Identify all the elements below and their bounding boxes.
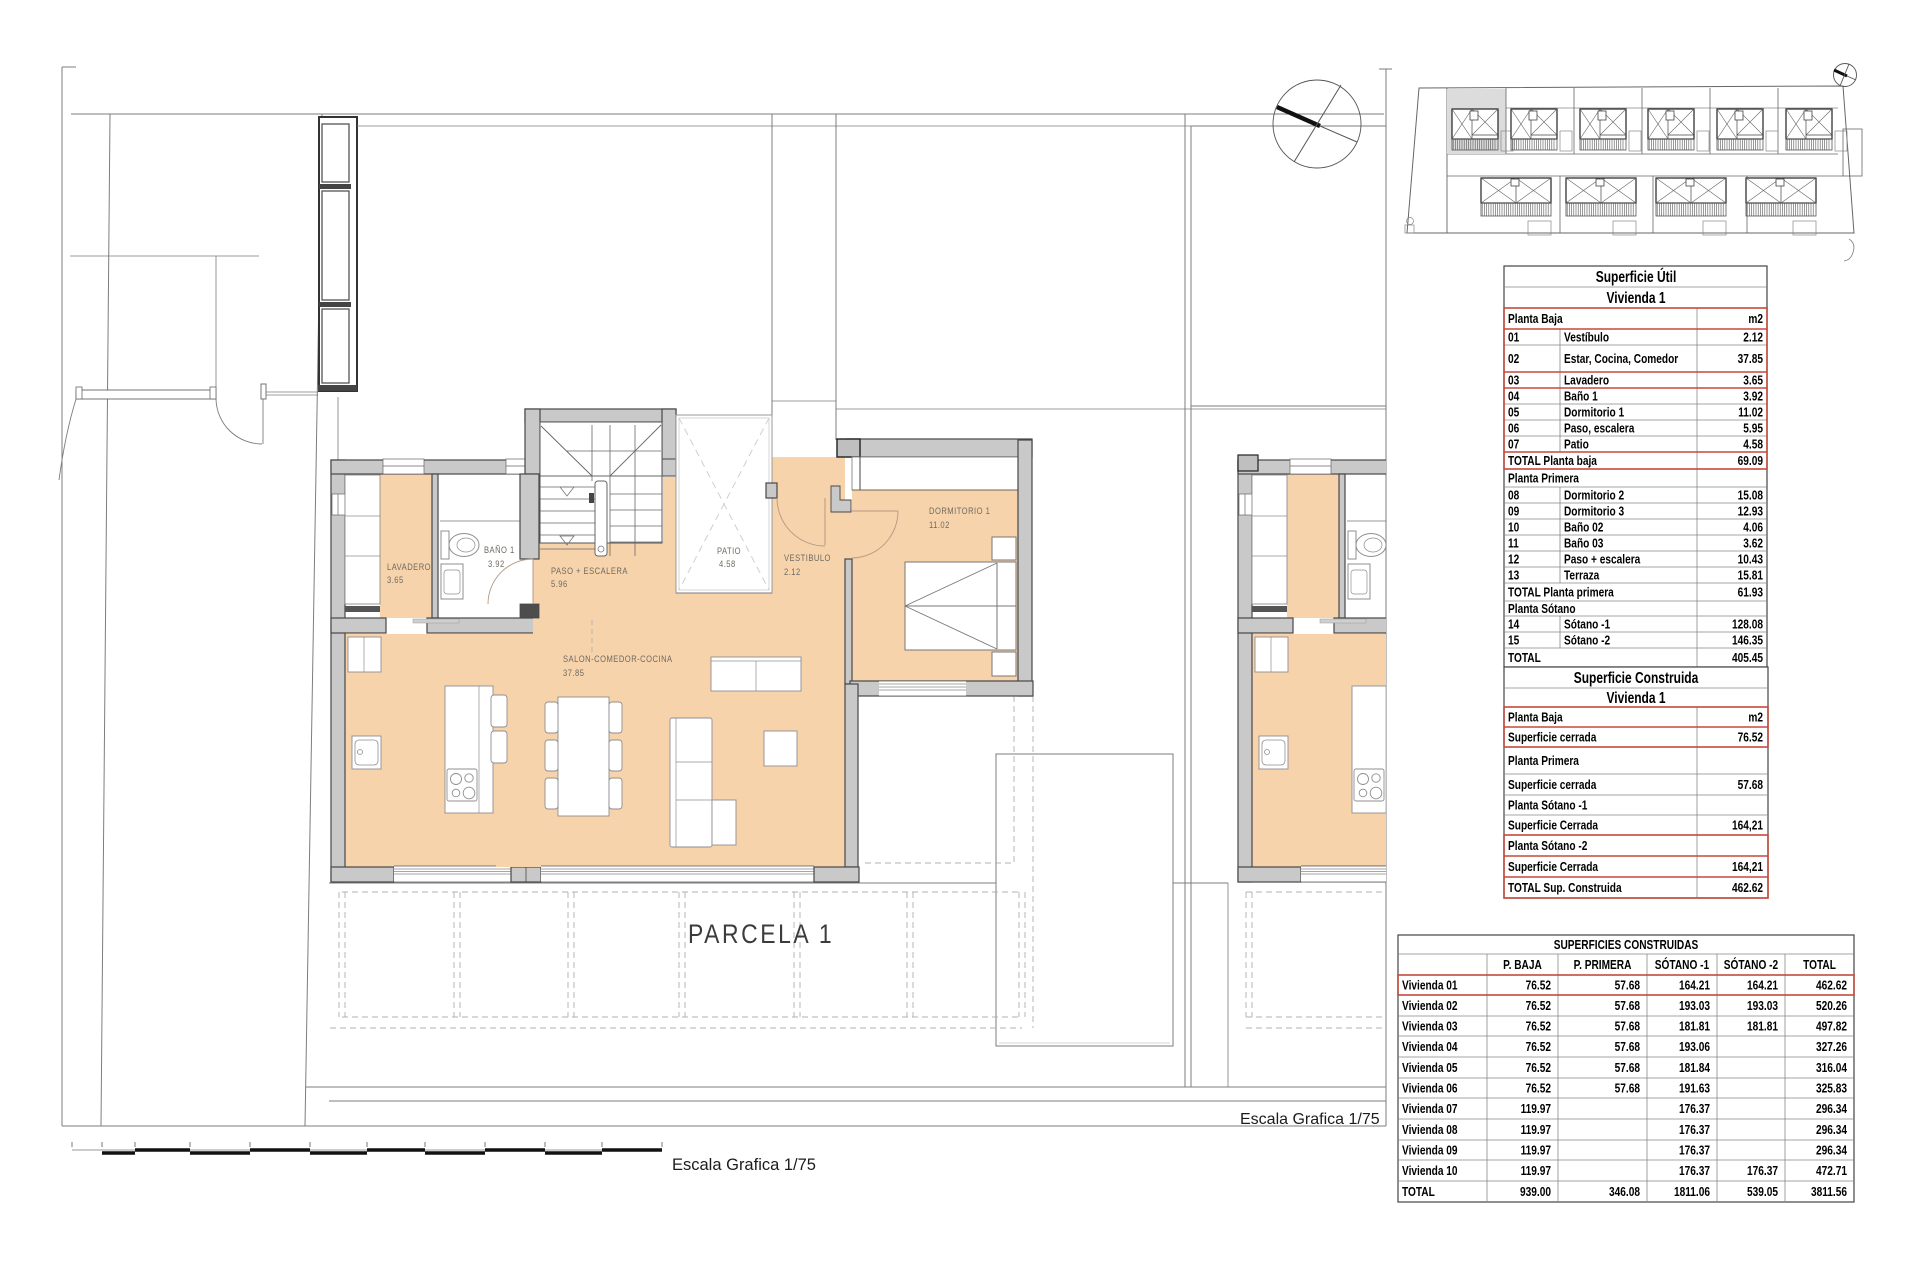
svg-text:119.97: 119.97: [1521, 1123, 1551, 1137]
svg-text:5.96: 5.96: [551, 578, 568, 589]
svg-text:119.97: 119.97: [1521, 1102, 1551, 1116]
svg-text:Lavadero: Lavadero: [1564, 373, 1609, 387]
svg-text:06: 06: [1508, 421, 1520, 435]
svg-text:128.08: 128.08: [1732, 617, 1763, 631]
svg-text:76.52: 76.52: [1526, 999, 1552, 1013]
svg-text:Superficie Cerrada: Superficie Cerrada: [1508, 860, 1598, 874]
svg-text:SÓTANO -2: SÓTANO -2: [1724, 958, 1779, 972]
svg-text:37.85: 37.85: [1738, 352, 1764, 366]
svg-text:Baño 02: Baño 02: [1564, 520, 1604, 534]
svg-text:176.37: 176.37: [1747, 1164, 1778, 1178]
svg-text:Vivienda 07: Vivienda 07: [1402, 1102, 1458, 1116]
svg-text:TOTAL: TOTAL: [1508, 651, 1541, 665]
svg-text:Sótano -1: Sótano -1: [1564, 617, 1611, 631]
svg-text:176.37: 176.37: [1679, 1102, 1710, 1116]
svg-text:Planta Sótano -2: Planta Sótano -2: [1508, 839, 1588, 853]
svg-text:Vestíbulo: Vestíbulo: [1564, 330, 1609, 344]
svg-text:76.52: 76.52: [1526, 1061, 1552, 1075]
svg-text:Planta Sótano -1: Planta Sótano -1: [1508, 798, 1588, 812]
svg-text:939.00: 939.00: [1520, 1185, 1551, 1199]
svg-text:PARCELA 1: PARCELA 1: [688, 919, 834, 949]
svg-text:76.52: 76.52: [1526, 1081, 1552, 1095]
svg-text:325.83: 325.83: [1816, 1081, 1847, 1095]
svg-text:76.52: 76.52: [1526, 1019, 1552, 1033]
svg-text:Vivienda 10: Vivienda 10: [1402, 1164, 1458, 1178]
svg-text:3.92: 3.92: [1743, 389, 1763, 403]
svg-text:Estar, Cocina, Comedor: Estar, Cocina, Comedor: [1564, 352, 1679, 366]
svg-text:Paso + escalera: Paso + escalera: [1564, 552, 1641, 566]
svg-text:296.34: 296.34: [1816, 1123, 1847, 1137]
svg-text:5.95: 5.95: [1743, 421, 1763, 435]
svg-text:3.92: 3.92: [488, 558, 505, 569]
svg-text:296.34: 296.34: [1816, 1102, 1847, 1116]
svg-text:176.37: 176.37: [1679, 1164, 1710, 1178]
svg-text:3.65: 3.65: [1743, 373, 1763, 387]
svg-text:57.68: 57.68: [1615, 1081, 1641, 1095]
svg-text:Dormitorio 3: Dormitorio 3: [1564, 504, 1625, 518]
svg-text:09: 09: [1508, 504, 1520, 518]
svg-text:m2: m2: [1748, 710, 1763, 724]
svg-text:Baño 1: Baño 1: [1564, 389, 1598, 403]
svg-text:296.34: 296.34: [1816, 1143, 1847, 1157]
svg-text:Superficie Cerrada: Superficie Cerrada: [1508, 818, 1598, 832]
svg-text:316.04: 316.04: [1816, 1061, 1847, 1075]
svg-text:346.08: 346.08: [1609, 1185, 1640, 1199]
svg-text:61.93: 61.93: [1738, 585, 1764, 599]
svg-text:SUPERFICIES CONSTRUIDAS: SUPERFICIES CONSTRUIDAS: [1554, 938, 1699, 952]
svg-text:3.62: 3.62: [1743, 536, 1763, 550]
svg-text:176.37: 176.37: [1679, 1143, 1710, 1157]
svg-text:10: 10: [1508, 520, 1519, 534]
svg-text:04: 04: [1508, 389, 1520, 403]
svg-text:Vivienda 04: Vivienda 04: [1402, 1040, 1458, 1054]
svg-text:164.21: 164.21: [1747, 978, 1778, 992]
svg-text:BAÑO 1: BAÑO 1: [484, 544, 515, 555]
svg-text:Dormitorio 2: Dormitorio 2: [1564, 488, 1625, 502]
svg-text:07: 07: [1508, 437, 1519, 451]
svg-text:TOTAL: TOTAL: [1803, 958, 1836, 972]
svg-text:Planta Primera: Planta Primera: [1508, 754, 1579, 768]
svg-text:12: 12: [1508, 552, 1520, 566]
svg-text:11.02: 11.02: [1738, 405, 1763, 419]
svg-text:539.05: 539.05: [1747, 1185, 1778, 1199]
svg-text:76.52: 76.52: [1526, 1040, 1552, 1054]
svg-text:57.68: 57.68: [1738, 778, 1764, 792]
svg-text:462.62: 462.62: [1732, 881, 1763, 895]
svg-text:Vivienda 06: Vivienda 06: [1402, 1081, 1458, 1095]
svg-text:Vivienda 01: Vivienda 01: [1402, 978, 1458, 992]
svg-text:TOTAL Planta primera: TOTAL Planta primera: [1508, 585, 1614, 599]
svg-text:Escala Grafica 1/75: Escala Grafica 1/75: [1240, 1111, 1380, 1128]
svg-text:P. PRIMERA: P. PRIMERA: [1574, 958, 1632, 972]
svg-text:57.68: 57.68: [1615, 1040, 1641, 1054]
svg-text:Vivienda 03: Vivienda 03: [1402, 1019, 1458, 1033]
svg-text:57.68: 57.68: [1615, 999, 1641, 1013]
svg-text:15: 15: [1508, 633, 1520, 647]
svg-text:3.65: 3.65: [387, 574, 404, 585]
svg-text:12.93: 12.93: [1738, 504, 1764, 518]
svg-text:405.45: 405.45: [1732, 651, 1763, 665]
svg-text:Vivienda 09: Vivienda 09: [1402, 1143, 1458, 1157]
svg-text:03: 03: [1508, 373, 1520, 387]
svg-text:Superficie Construida: Superficie Construida: [1574, 668, 1699, 686]
svg-text:PASO + ESCALERA: PASO + ESCALERA: [551, 565, 628, 576]
svg-text:57.68: 57.68: [1615, 1019, 1641, 1033]
svg-text:37.85: 37.85: [563, 667, 584, 678]
svg-text:4.58: 4.58: [719, 558, 736, 569]
svg-text:Vivienda 08: Vivienda 08: [1402, 1123, 1458, 1137]
svg-text:181.81: 181.81: [1679, 1019, 1710, 1033]
svg-text:181.81: 181.81: [1747, 1019, 1778, 1033]
svg-text:Terraza: Terraza: [1564, 568, 1600, 582]
svg-text:76.52: 76.52: [1738, 730, 1764, 744]
svg-text:10.43: 10.43: [1738, 552, 1764, 566]
svg-text:05: 05: [1508, 405, 1520, 419]
svg-text:57.68: 57.68: [1615, 978, 1641, 992]
svg-text:146.35: 146.35: [1732, 633, 1763, 647]
svg-text:Planta Baja: Planta Baja: [1508, 710, 1563, 724]
svg-text:P. BAJA: P. BAJA: [1503, 958, 1542, 972]
svg-text:11: 11: [1508, 536, 1519, 550]
svg-text:1811.06: 1811.06: [1674, 1185, 1710, 1199]
svg-text:69.09: 69.09: [1738, 454, 1764, 468]
svg-text:Vivienda 02: Vivienda 02: [1402, 999, 1458, 1013]
svg-text:Vivienda 05: Vivienda 05: [1402, 1061, 1458, 1075]
svg-text:14: 14: [1508, 617, 1520, 631]
svg-text:76.52: 76.52: [1526, 978, 1552, 992]
svg-text:Patio: Patio: [1564, 437, 1589, 451]
svg-text:193.03: 193.03: [1747, 999, 1778, 1013]
svg-text:TOTAL Sup. Construida: TOTAL Sup. Construida: [1508, 881, 1622, 895]
svg-text:497.82: 497.82: [1816, 1019, 1847, 1033]
svg-text:Baño 03: Baño 03: [1564, 536, 1604, 550]
svg-text:TOTAL: TOTAL: [1402, 1185, 1435, 1199]
svg-text:Escala Grafica 1/75: Escala Grafica 1/75: [672, 1156, 816, 1174]
svg-text:4.58: 4.58: [1743, 437, 1763, 451]
svg-text:13: 13: [1508, 568, 1520, 582]
svg-text:181.84: 181.84: [1679, 1061, 1710, 1075]
svg-text:2.12: 2.12: [1743, 330, 1763, 344]
svg-text:164,21: 164,21: [1732, 818, 1763, 832]
svg-text:SÓTANO -1: SÓTANO -1: [1655, 958, 1710, 972]
svg-text:164.21: 164.21: [1679, 978, 1710, 992]
svg-text:01: 01: [1508, 330, 1520, 344]
svg-text:Paso, escalera: Paso, escalera: [1564, 421, 1635, 435]
svg-text:SALON-COMEDOR-COCINA: SALON-COMEDOR-COCINA: [563, 653, 673, 664]
svg-text:472.71: 472.71: [1816, 1164, 1847, 1178]
svg-text:Dormitorio 1: Dormitorio 1: [1564, 405, 1625, 419]
svg-text:Superficie Útil: Superficie Útil: [1596, 266, 1677, 285]
svg-text:119.97: 119.97: [1521, 1164, 1551, 1178]
svg-text:15.81: 15.81: [1738, 568, 1764, 582]
svg-text:119.97: 119.97: [1521, 1143, 1551, 1157]
svg-text:193.06: 193.06: [1679, 1040, 1710, 1054]
svg-text:TOTAL Planta baja: TOTAL Planta baja: [1508, 454, 1597, 468]
svg-text:Superficie cerrada: Superficie cerrada: [1508, 778, 1597, 792]
svg-text:Planta Sótano: Planta Sótano: [1508, 602, 1576, 616]
svg-text:Vivienda 1: Vivienda 1: [1606, 288, 1665, 306]
svg-text:02: 02: [1508, 352, 1520, 366]
svg-text:191.63: 191.63: [1679, 1081, 1710, 1095]
svg-text:15.08: 15.08: [1738, 488, 1764, 502]
svg-text:PATIO: PATIO: [717, 545, 741, 556]
svg-text:Vivienda 1: Vivienda 1: [1606, 688, 1665, 706]
svg-text:193.03: 193.03: [1679, 999, 1710, 1013]
svg-text:DORMITORIO 1: DORMITORIO 1: [929, 505, 990, 516]
svg-text:3811.56: 3811.56: [1811, 1185, 1847, 1199]
svg-text:Sótano -2: Sótano -2: [1564, 633, 1611, 647]
svg-text:2.12: 2.12: [784, 566, 801, 577]
svg-text:327.26: 327.26: [1816, 1040, 1847, 1054]
svg-text:08: 08: [1508, 488, 1520, 502]
svg-text:520.26: 520.26: [1816, 999, 1847, 1013]
svg-text:57.68: 57.68: [1615, 1061, 1641, 1075]
svg-text:Planta Baja: Planta Baja: [1508, 312, 1563, 326]
svg-text:Superficie cerrada: Superficie cerrada: [1508, 730, 1597, 744]
svg-text:462.62: 462.62: [1816, 978, 1847, 992]
svg-text:Planta Primera: Planta Primera: [1508, 471, 1579, 485]
svg-text:4.06: 4.06: [1743, 520, 1763, 534]
svg-text:m2: m2: [1748, 312, 1763, 326]
svg-text:VESTIBULO: VESTIBULO: [784, 552, 831, 563]
svg-text:176.37: 176.37: [1679, 1123, 1710, 1137]
svg-text:11.02: 11.02: [929, 519, 950, 530]
svg-text:LAVADERO: LAVADERO: [387, 561, 431, 572]
svg-text:164,21: 164,21: [1732, 860, 1763, 874]
